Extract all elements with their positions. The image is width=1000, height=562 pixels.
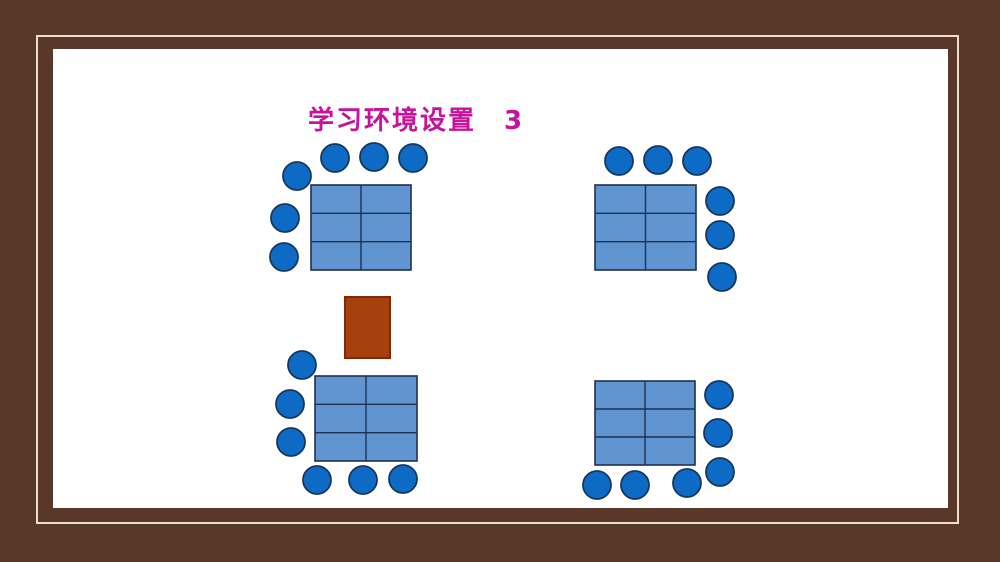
slide-title: 学习环境设置 3 (308, 107, 524, 136)
presentation-frame: 学习环境设置 3 (0, 0, 1000, 562)
slide-canvas: 学习环境设置 3 (53, 49, 948, 508)
